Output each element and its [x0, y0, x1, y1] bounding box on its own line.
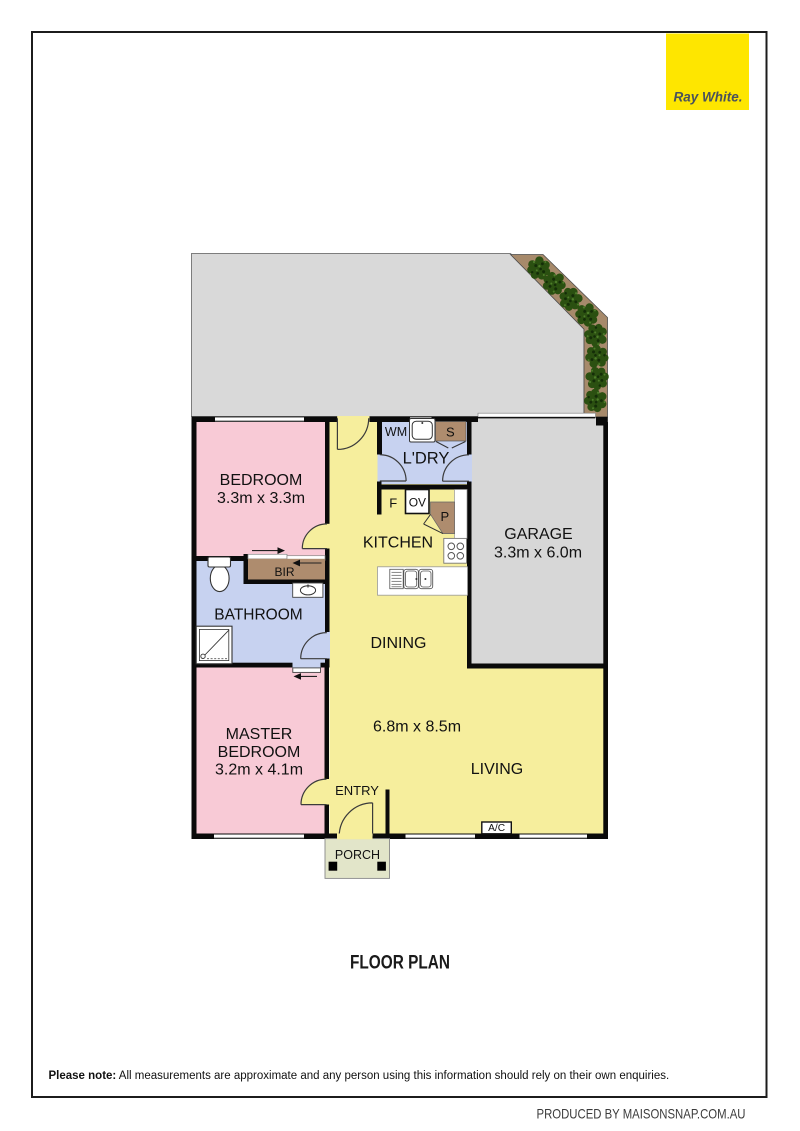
svg-text:GARAGE: GARAGE	[504, 526, 572, 543]
svg-text:OV: OV	[409, 496, 426, 510]
svg-text:PORCH: PORCH	[335, 848, 380, 862]
svg-text:FLOOR PLAN: FLOOR PLAN	[350, 953, 450, 974]
svg-text:BATHROOM: BATHROOM	[214, 607, 302, 624]
svg-text:3.2m x 4.1m: 3.2m x 4.1m	[215, 762, 303, 779]
svg-text:Ray White.: Ray White.	[673, 90, 742, 105]
svg-text:BIR: BIR	[274, 565, 294, 579]
svg-text:F: F	[389, 495, 397, 510]
svg-text:3.3m x 6.0m: 3.3m x 6.0m	[494, 545, 582, 562]
svg-text:KITCHEN: KITCHEN	[363, 535, 433, 552]
svg-text:DINING: DINING	[371, 635, 427, 652]
svg-text:LIVING: LIVING	[471, 761, 523, 778]
svg-text:S: S	[446, 424, 455, 439]
svg-text:L'DRY: L'DRY	[403, 450, 450, 468]
svg-text:A/C: A/C	[488, 823, 505, 834]
svg-text:MASTER: MASTER	[226, 726, 293, 743]
svg-text:PRODUCED BY MAISONSNAP.COM.AU: PRODUCED BY MAISONSNAP.COM.AU	[537, 1106, 746, 1122]
svg-text:Please note: All measurements: Please note: All measurements are approx…	[49, 1070, 670, 1082]
svg-text:BEDROOM: BEDROOM	[218, 744, 301, 761]
svg-text:BEDROOM: BEDROOM	[220, 472, 303, 489]
svg-text:6.8m x 8.5m: 6.8m x 8.5m	[373, 719, 461, 736]
svg-text:3.3m x 3.3m: 3.3m x 3.3m	[217, 490, 305, 507]
svg-text:ENTRY: ENTRY	[335, 783, 379, 798]
svg-text:P: P	[440, 509, 449, 524]
svg-text:WM: WM	[385, 425, 407, 439]
